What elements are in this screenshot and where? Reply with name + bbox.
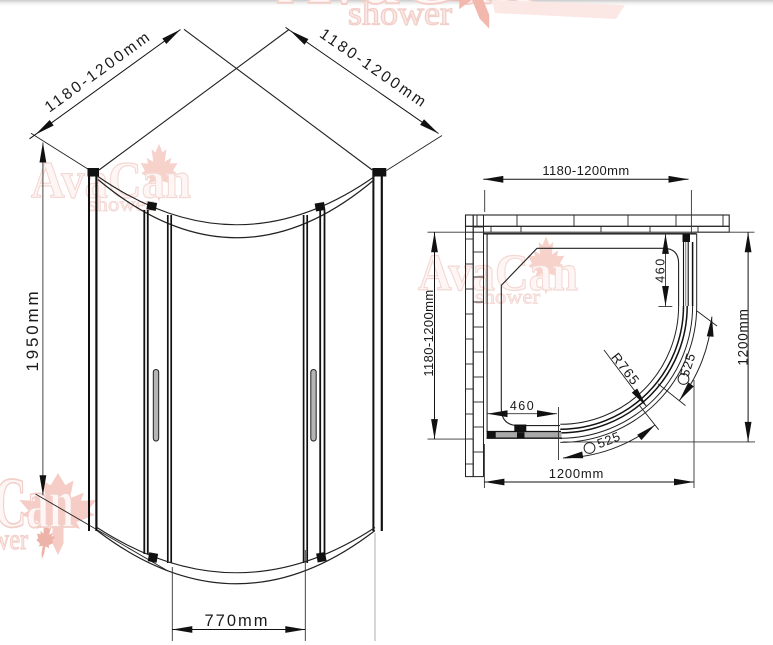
svg-text:770mm: 770mm — [204, 612, 269, 630]
svg-text:1180-1200mm: 1180-1200mm — [421, 289, 436, 376]
svg-text:1950mm: 1950mm — [23, 289, 42, 372]
svg-text:460: 460 — [510, 399, 535, 413]
svg-text:1180-1200mm: 1180-1200mm — [542, 163, 629, 178]
svg-text:460: 460 — [654, 257, 668, 282]
svg-text:1200mm: 1200mm — [549, 466, 604, 481]
svg-text:1200mm: 1200mm — [735, 308, 750, 365]
svg-text:shower: shower — [475, 285, 540, 309]
svg-text:shower: shower — [88, 192, 153, 216]
svg-text:shower: shower — [348, 0, 452, 33]
svg-text:wer: wer — [0, 523, 28, 556]
